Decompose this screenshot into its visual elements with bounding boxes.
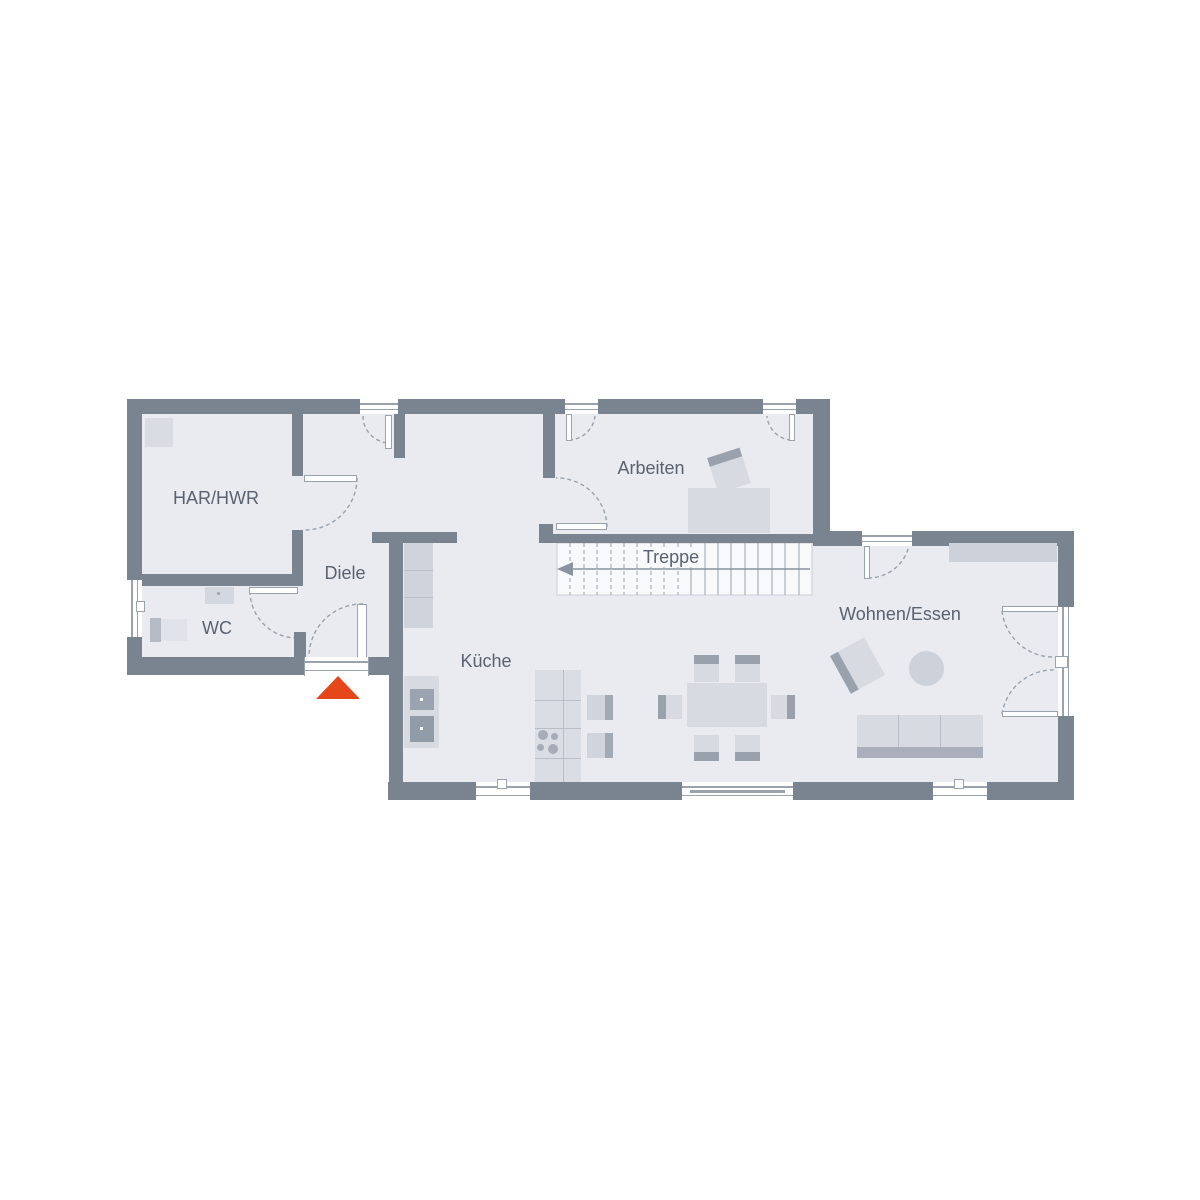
desk	[688, 488, 770, 533]
cooktop-burner	[538, 730, 548, 740]
window-handle-wohnen	[954, 779, 964, 789]
sideboard	[949, 543, 1057, 562]
french-door-mullion	[1055, 656, 1068, 668]
wc-door-arc	[250, 591, 297, 638]
window2-leaf	[789, 414, 795, 441]
dining-table	[687, 683, 767, 727]
sofa-front-edge	[857, 747, 983, 758]
kitchen-tall-cabinet	[404, 543, 433, 628]
dining-chair	[694, 655, 719, 682]
corridor-door-leaf	[556, 523, 607, 530]
window2-arc	[767, 416, 791, 440]
floor-plan: HAR/HWR WC Diele Arbeiten Treppe Küche W…	[0, 0, 1200, 1200]
window3-leaf	[864, 546, 870, 579]
wall-right-upper	[1058, 531, 1074, 607]
window-handle-wc	[136, 601, 145, 612]
washbasin-drain	[217, 592, 220, 595]
window-arbeiten-left	[565, 399, 598, 414]
wall-corridor-arbeiten	[543, 412, 555, 478]
top-door-leaf	[385, 415, 392, 449]
bar-stool	[587, 733, 613, 758]
wall-kitchen-left	[389, 543, 403, 784]
room-label-wohnen-essen: Wohnen/Essen	[839, 605, 961, 623]
wall-wc-stub	[294, 632, 306, 658]
sliding-window-rail	[690, 790, 785, 793]
wall-top	[127, 399, 830, 414]
cooktop-burner	[537, 744, 544, 751]
dining-chair	[694, 735, 719, 761]
oven-tower	[404, 676, 439, 748]
dining-chair	[771, 695, 795, 719]
wall-har-east-lower	[292, 530, 303, 576]
corridor-door-arc	[556, 478, 607, 527]
window-arbeiten-right	[763, 399, 796, 414]
window1-leaf	[566, 414, 572, 441]
room-label-diele: Diele	[324, 564, 365, 582]
dining-chair	[658, 695, 682, 719]
bar-stool	[587, 695, 613, 720]
cooktop-burner	[548, 744, 558, 754]
pouf	[909, 651, 944, 686]
wall-diele-kueche-horizontal	[372, 532, 457, 543]
entrance-door-leaf	[357, 604, 367, 658]
french-door-lower-leaf	[1002, 711, 1058, 717]
har-door-leaf	[304, 475, 357, 482]
wall-stair	[540, 534, 813, 543]
kitchen-island	[535, 670, 581, 782]
window1-arc	[569, 416, 595, 440]
har-shaft	[145, 418, 173, 447]
wc-washbasin	[205, 587, 234, 604]
sliding-window-bottom	[682, 782, 793, 800]
built-in-oven	[410, 716, 434, 742]
room-label-wc: WC	[202, 619, 232, 637]
stairs-and-arcs-layer	[0, 0, 1200, 1200]
dining-chair	[735, 655, 760, 682]
room-label-treppe: Treppe	[640, 547, 702, 567]
wc-toilet-cistern	[150, 618, 161, 642]
cooktop-burner	[551, 733, 558, 740]
french-door-lower-arc	[1002, 670, 1056, 714]
wall-right-top-block	[813, 399, 830, 546]
har-door-arc	[305, 478, 357, 530]
window-handle-kueche	[497, 779, 507, 789]
glazed-door-top	[360, 399, 398, 414]
sofa	[857, 715, 983, 758]
built-in-microwave	[410, 689, 434, 710]
wc-toilet-bowl	[161, 619, 187, 641]
wall-har-east-upper	[292, 412, 303, 476]
wall-top-stub	[394, 412, 405, 458]
entrance-arrow	[316, 676, 360, 699]
room-label-arbeiten: Arbeiten	[617, 459, 684, 477]
window3-arc	[868, 546, 909, 578]
french-door-upper-arc	[1002, 611, 1056, 657]
room-label-kueche: Küche	[460, 652, 511, 670]
wall-har-wc-divider	[127, 574, 303, 586]
dining-chair	[735, 735, 760, 761]
french-door-upper-leaf	[1002, 606, 1058, 612]
entrance-threshold	[304, 657, 369, 676]
wall-stair-end-post	[539, 524, 553, 543]
room-label-har-hwr: HAR/HWR	[173, 489, 259, 507]
window-wohnen-top	[862, 531, 912, 546]
entrance-door-arc	[309, 604, 363, 657]
wc-door-leaf	[249, 587, 298, 594]
